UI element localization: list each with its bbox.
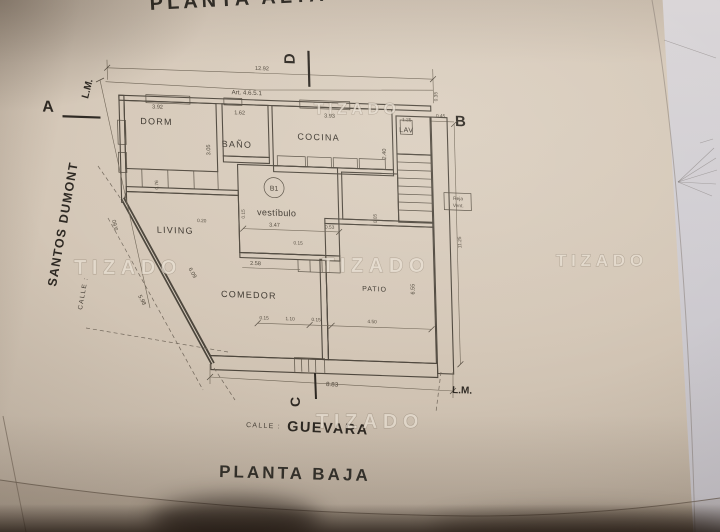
room-label-banio: BAÑO	[222, 139, 253, 150]
dim-patio-gap: 0.05	[373, 213, 379, 223]
dim-banio-w: 1.62	[234, 110, 245, 116]
room-label-cocina: COCINA	[297, 131, 340, 142]
counter	[277, 156, 305, 167]
dashed-line	[98, 166, 123, 202]
room-label-comedor: COMEDOR	[221, 289, 277, 301]
dashed-line	[214, 368, 235, 400]
sketch-marks	[664, 40, 717, 196]
room-label-vestibulo: vestíbulo	[257, 207, 296, 218]
dim-vest-r: 0.53	[325, 224, 335, 230]
title-planta-alta-cut: PLANTA ALTA	[149, 0, 328, 15]
photo-of-floor-plan: PLANTA ALTA 12.92 0.35 Art. 4.6.5.1 A L.…	[0, 0, 720, 532]
dim-lot-right: 11.25	[457, 236, 463, 248]
dim-comedor-w: 2.58	[250, 261, 261, 267]
dim-cocina-h: 2.40	[382, 149, 388, 160]
lot-line-top	[105, 79, 433, 96]
dim-vest-w: 3.47	[269, 223, 280, 229]
dim-lot-top: 12.92	[255, 66, 269, 72]
service-rungs	[397, 162, 432, 211]
wall-right	[431, 117, 454, 374]
wall-living-top	[126, 187, 238, 196]
dim-vest-side: 0.15	[241, 209, 247, 219]
room-label-patio: PATIO	[362, 286, 387, 294]
counter	[333, 158, 357, 169]
dim-bottom-2: 1.10	[285, 316, 295, 322]
marker-lm-bottom: L.M.	[452, 385, 473, 397]
watermark-5: TIZADO	[316, 411, 424, 433]
service-strip	[397, 154, 433, 223]
title-planta-baja: PLANTA BAJA	[219, 462, 371, 485]
room-label-living: LIVING	[157, 225, 194, 236]
room-label-dorm: DORM	[140, 116, 173, 127]
dim-lot-left: 9.60	[112, 219, 120, 231]
dashed-line	[108, 218, 203, 390]
vestibulo-tag: B1	[270, 186, 279, 193]
dim-diag-wall: 6.09	[187, 267, 198, 279]
dim-lav-w: 1.25	[402, 117, 412, 123]
watermark-4: TIZADO	[556, 251, 648, 270]
marker-d: D	[282, 53, 299, 65]
marker-a: A	[42, 99, 54, 116]
dim-closet-d: 0.76	[154, 180, 160, 190]
dim-bottom-4: 4.50	[367, 319, 377, 325]
room-dorm	[124, 100, 218, 171]
dim-diag-lot: 5.98	[136, 294, 146, 306]
dim-dorm-w: 3.92	[152, 104, 163, 110]
dashed-line	[86, 328, 228, 352]
plan-svg: PLANTA ALTA 12.92 0.35 Art. 4.6.5.1 A L.…	[0, 0, 720, 532]
dim-vest-wall: 0.15	[293, 240, 303, 246]
street-bottom-prefix: CALLE :	[246, 422, 281, 431]
building: 12.92 0.35 Art. 4.6.5.1 A L.M. D B 0.45	[41, 41, 476, 378]
dim-bottom-1: 0.15	[259, 315, 269, 321]
room-patio	[325, 223, 437, 363]
dim-patio-h: 6.55	[410, 284, 416, 295]
watermark-1: TIZADO	[314, 101, 400, 118]
reja-label-2: Vent.	[453, 203, 464, 209]
marker-lm-top: L.M.	[80, 77, 95, 100]
closet	[142, 169, 218, 190]
room-label-lav: LAV	[399, 127, 414, 135]
watermark-3: TIZADO	[322, 255, 430, 277]
counter	[307, 157, 331, 168]
reja-label-1: Reja	[453, 196, 463, 202]
crosshatch-zone	[342, 172, 399, 221]
note-article: Art. 4.6.5.1	[232, 89, 263, 97]
dim-right-offset: 0.45	[436, 113, 446, 119]
dim-top-offset: 0.35	[433, 92, 439, 102]
dim-dorm-h: 3.05	[206, 144, 212, 155]
dim-living-gap: 0.20	[197, 218, 207, 224]
watermark-2: TIZADO	[74, 257, 182, 279]
marker-c: C	[287, 397, 303, 407]
wall-banio-bottom	[223, 156, 269, 164]
dim-lot-bottom: 8.83	[326, 381, 339, 389]
watermarks: TIZADO TIZADO TIZADO TIZADO TIZADO	[74, 101, 648, 433]
street-left-prefix: CALLE :	[77, 276, 90, 310]
dim-bottom-3: 0.15	[311, 317, 321, 323]
